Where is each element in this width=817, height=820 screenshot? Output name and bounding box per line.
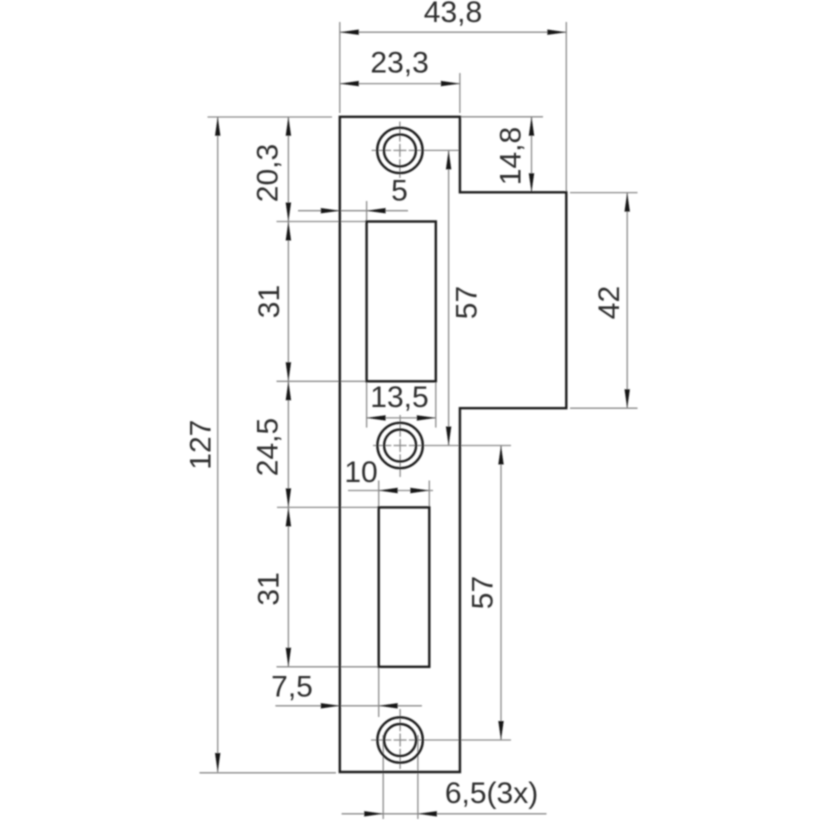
svg-text:6,5(3x): 6,5(3x) bbox=[445, 777, 538, 810]
svg-text:23,3: 23,3 bbox=[370, 46, 428, 79]
svg-text:42: 42 bbox=[593, 286, 626, 319]
svg-text:5: 5 bbox=[391, 175, 408, 208]
svg-text:57: 57 bbox=[467, 576, 500, 609]
svg-text:14,8: 14,8 bbox=[495, 127, 528, 185]
svg-text:31: 31 bbox=[253, 572, 286, 605]
svg-text:24,5: 24,5 bbox=[252, 418, 285, 476]
svg-text:7,5: 7,5 bbox=[271, 671, 313, 704]
svg-text:43,8: 43,8 bbox=[424, 0, 482, 29]
svg-text:10: 10 bbox=[344, 456, 377, 489]
svg-text:57: 57 bbox=[450, 286, 483, 319]
svg-text:13,5: 13,5 bbox=[370, 381, 428, 414]
svg-text:20,3: 20,3 bbox=[252, 144, 285, 202]
svg-text:127: 127 bbox=[185, 420, 218, 470]
svg-text:31: 31 bbox=[253, 285, 286, 318]
